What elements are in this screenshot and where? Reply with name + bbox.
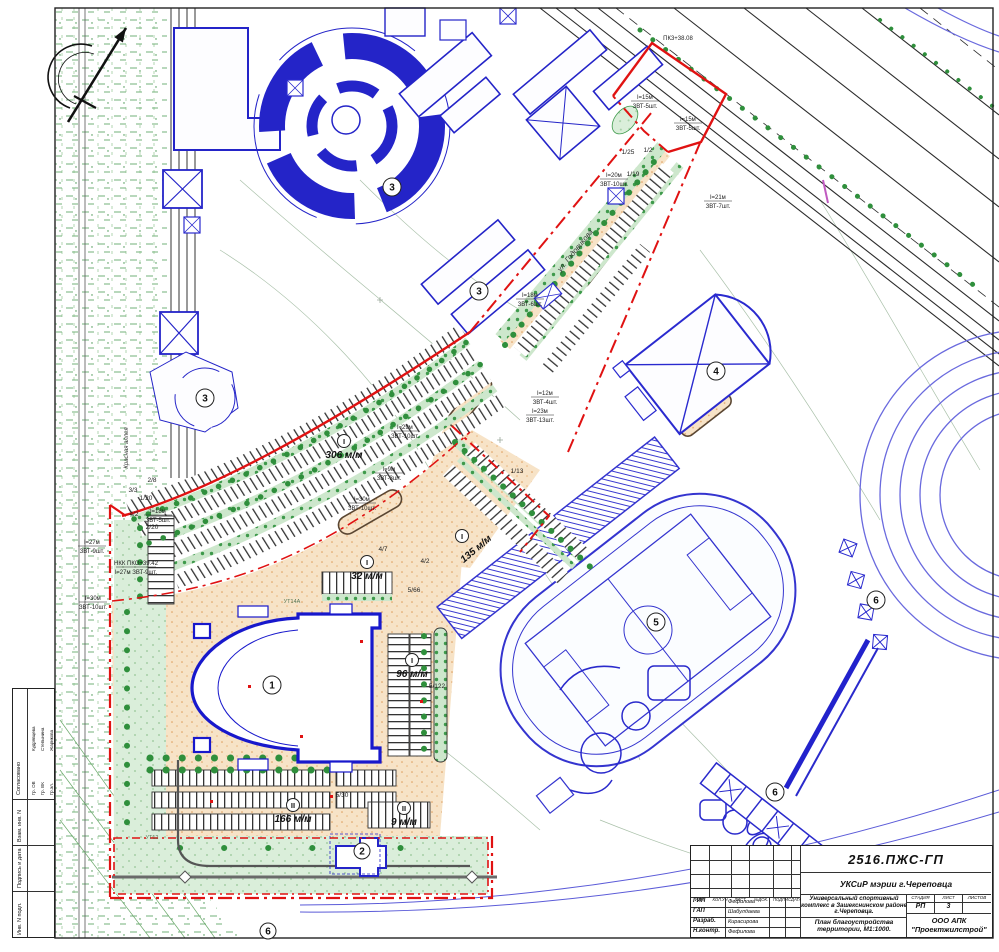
callout-3a: 3 [389,183,395,194]
sheet-title: План благоустройства территории, М1:1000… [801,918,907,937]
revision-header: ИЗМ.КОЛ.УЧЛИСТ№ДОК.ПОДПИСЬДАТА [691,889,801,897]
annotation: ЗВТ-10шт. [600,182,628,188]
role-razrab: Разраб. [693,918,716,924]
sheet-number: 3 [935,903,963,914]
callout-5: 5 [653,618,659,629]
revision-table: ИЗМ.КОЛ.УЧЛИСТ№ДОК.ПОДПИСЬДАТА ГИП Фефил… [691,846,801,937]
fraction: 5/122 [429,683,446,690]
callout-6a: 6 [873,596,879,607]
signer-vk: Гр. ВК [40,782,45,795]
annotation: ЗВТ-7шт. [706,204,731,210]
annotation: l=30м [354,497,370,503]
annotation: l=9м [383,467,395,473]
fraction: 4/2 [129,511,138,518]
fraction: 1/2 [643,147,652,154]
fraction: 4/2 [420,558,429,565]
callout-6c: 6 [265,927,271,938]
annotation: ЗВТ-10шт. [79,605,107,611]
annotation: l=21м [710,195,726,201]
sheets-total [963,903,991,914]
utility-label: УТ12 [146,835,159,841]
project-name: Универсальный спортивный комплекс в Заше… [801,895,907,918]
frame-cell-inv: Инв. N подл. [17,903,23,935]
company-line2: "Проектжилстрой" [907,925,991,934]
fraction: 4/7 [378,546,387,553]
annotation: l=27м ЗВТ-9шт. [115,570,157,576]
drawing-sheet: 1 2 3 3 3 4 5 6 6 6 I 306 м/м I 32 м/м I… [0,0,999,952]
parking-count: 306 м/м [325,450,363,461]
parking-count: 96 м/м [396,669,428,680]
annotation: ЗВТ-3шт. [377,476,402,482]
company-line1: ООО АПК [907,916,991,925]
callout-4: 4 [713,367,719,378]
annotation: l=15м [680,117,696,123]
annotation: l=12м [537,391,553,397]
name-razrab: Кирасирова [728,919,758,925]
annotation: ЗВТ-6шт. [518,302,543,308]
annotation: ЗВТ-9шт. [80,549,105,555]
fraction: 3/3 [128,487,137,494]
annotation: НКК ПКО+39.42 [114,561,159,567]
street-label: Красная аллея [124,427,130,469]
name-nkontr: Фефилова [728,929,755,935]
callout-6b: 6 [772,788,778,799]
parking-count: 32 м/м [351,571,383,582]
annotation: l=20м [606,173,622,179]
parking-badge: II [291,801,295,810]
fraction: 5/30 [336,792,349,799]
callout-3b: 3 [476,287,482,298]
role-gip: ГИП [693,898,705,904]
callout-1: 1 [269,681,275,692]
callout-3c: 3 [202,394,208,405]
annotation: ЗВТ-13шт. [526,418,554,424]
signer-ov: Гр. ОВ [31,781,36,795]
parking-badge: I [343,437,345,446]
client-name: УКСиР мэрии г.Череповца [801,873,991,895]
document-number: 2516.ПЖС-ГП [801,846,991,873]
sheet-label: ЛИСТ [935,895,963,903]
annotation: l=27м [84,540,100,546]
parking-badge: I [411,656,413,665]
fraction: 2/8 [147,477,156,484]
name-gap: Шабулдаева [728,909,760,915]
frame-cell-vzam: Взам. инв. N [17,810,23,842]
role-nkontr: Н.контр. [693,928,720,934]
signer-el-name: Жарикова [49,730,54,751]
utility-label: УТ14А [284,599,301,605]
annotation: l=18м [522,293,538,299]
title-block: ИЗМ.КОЛ.УЧЛИСТ№ДОК.ПОДПИСЬДАТА ГИП Фефил… [690,845,993,938]
parking-count: 9 м/м [391,817,418,828]
annotation: l=30м [85,596,101,602]
annotation: l=23м [532,409,548,415]
name-gip: Фефилова [728,899,755,905]
signer-el: Гр.эл. [49,783,54,795]
site-plan-canvas: 1 2 3 3 3 4 5 6 6 6 I 306 м/м I 32 м/м I… [0,0,999,952]
sheets-label: ЛИСТОВ [963,895,991,903]
annotation: l=18м [150,509,166,515]
fraction: 5/66 [408,587,421,594]
parking-badge: II [402,804,406,813]
signer-ov-name: Кудрявцева [31,727,36,752]
annotation: ЗВТ-10шт. [348,506,376,512]
side-stamp: Согласовано Гр. ОВ Кудрявцева Гр. ВК Сте… [12,688,55,938]
frame-cell-podpis: Подпись и дата [17,848,23,888]
annotation: ЗВТ-10шт. [391,434,419,440]
annotation: ЗВТ-5шт. [676,126,701,132]
annotation: l=15м [637,95,653,101]
fraction: 2/20 [146,524,159,531]
stage-value: РП [907,903,935,914]
fraction: 1/25 [622,149,635,156]
annotation: l=29м [397,425,413,431]
company-name: ООО АПК "Проектжилстрой" [907,914,991,937]
fraction: 1/19 [627,171,640,178]
annotation: ПК3+38.08 [663,36,693,42]
title-block-right: 2516.ПЖС-ГП УКСиР мэрии г.Череповца Унив… [801,846,991,937]
annotation: ЗВТ-5шт. [633,104,658,110]
fraction: 1/20 [140,495,153,502]
role-gap: ГАП [693,908,705,914]
parking-count: 166 м/м [274,814,312,825]
agreed-label: Согласовано [16,762,22,795]
parking-badge: I [366,558,368,567]
fraction: 1/13 [511,468,524,475]
stage-label: СТАДИЯ [907,895,935,903]
annotation: ЗВТ-4шт. [533,400,558,406]
signer-vk-name: Степынина [40,728,45,751]
callout-2: 2 [359,847,365,858]
parking-badge: I [461,532,463,541]
